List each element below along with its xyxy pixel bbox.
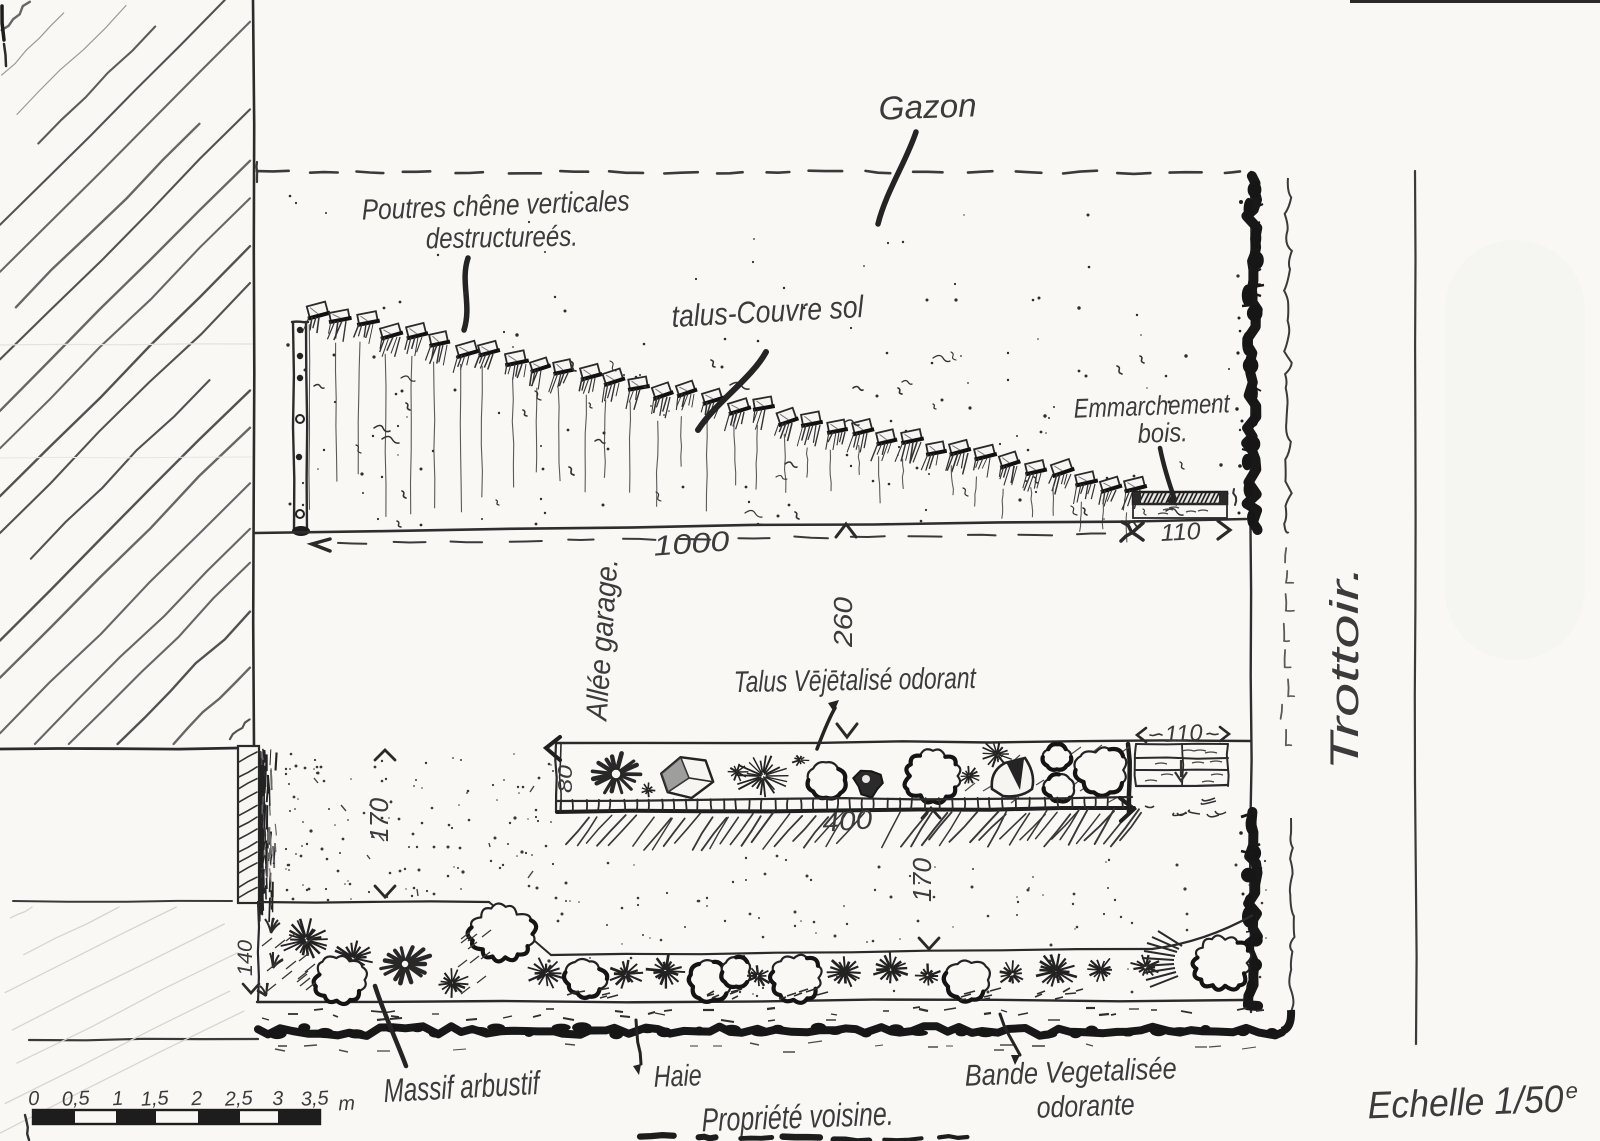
svg-text:e: e	[1565, 1078, 1578, 1103]
svg-text:140: 140	[234, 940, 257, 976]
svg-text:400: 400	[821, 804, 873, 837]
svg-text:2,5: 2,5	[223, 1087, 254, 1111]
svg-text:Propriété voisine.: Propriété voisine.	[701, 1095, 894, 1139]
svg-text:Haie: Haie	[653, 1059, 702, 1094]
svg-text:Gazon: Gazon	[878, 86, 977, 126]
svg-text:odorante: odorante	[1036, 1088, 1135, 1124]
svg-text:3,5: 3,5	[300, 1087, 330, 1110]
svg-text:Echelle 1/50: Echelle 1/50	[1367, 1079, 1564, 1128]
svg-text:110: 110	[1164, 719, 1204, 747]
svg-text:bois.: bois.	[1137, 417, 1188, 449]
svg-text:1,5: 1,5	[140, 1087, 170, 1110]
svg-text:2: 2	[190, 1088, 203, 1111]
svg-text:3: 3	[272, 1088, 284, 1111]
svg-text:80: 80	[555, 765, 577, 793]
svg-text:170: 170	[907, 857, 937, 902]
svg-text:Talus Vējētalisé odorant: Talus Vējētalisé odorant	[734, 662, 978, 699]
svg-text:1000: 1000	[652, 525, 730, 561]
svg-text:260: 260	[828, 596, 858, 648]
svg-text:Trottoir.: Trottoir.	[1323, 566, 1367, 771]
svg-text:0: 0	[28, 1088, 40, 1111]
svg-text:0,5: 0,5	[61, 1087, 91, 1110]
svg-text:1: 1	[112, 1088, 124, 1111]
svg-text:m: m	[338, 1093, 356, 1116]
svg-text:110: 110	[1160, 518, 1202, 547]
svg-text:destructureés.: destructureés.	[426, 221, 579, 256]
